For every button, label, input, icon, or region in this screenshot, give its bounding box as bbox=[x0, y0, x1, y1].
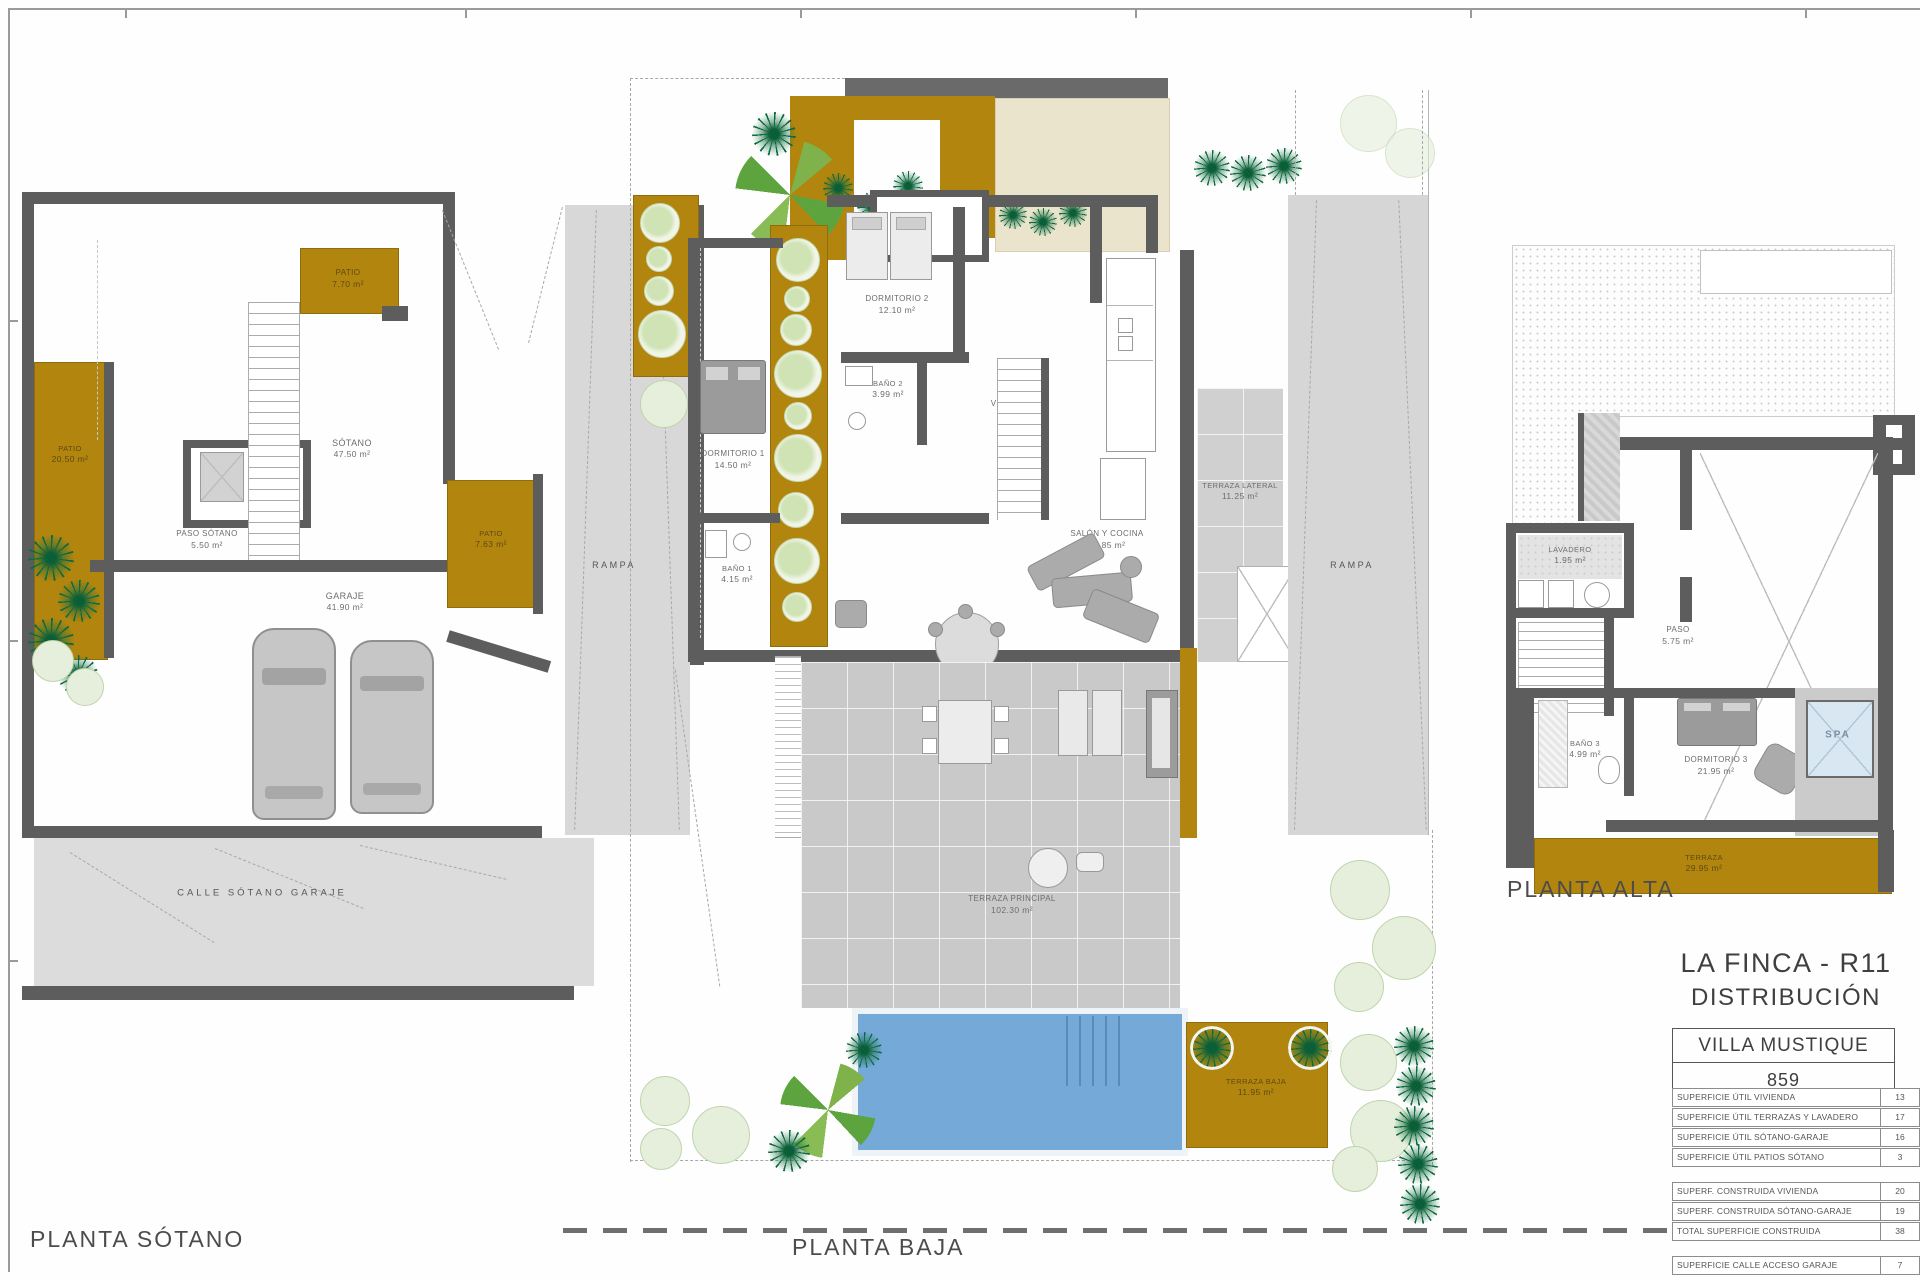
chair-icon bbox=[994, 738, 1009, 754]
lounger-icon bbox=[1092, 690, 1122, 756]
room-name: PATIO bbox=[336, 268, 361, 277]
dashed-line bbox=[700, 248, 701, 638]
area-row-value: 20 bbox=[1880, 1183, 1919, 1200]
tree-icon bbox=[1394, 1026, 1434, 1066]
wall bbox=[22, 192, 455, 204]
project-subtitle: DISTRIBUCIÓN bbox=[1672, 984, 1900, 1012]
wall bbox=[104, 362, 114, 658]
stairs bbox=[248, 302, 300, 564]
room-area: 12.10 m² bbox=[865, 305, 928, 316]
area-table-row: SUPERFICIE ÚTIL SÓTANO-GARAJE 16 bbox=[1672, 1128, 1920, 1147]
planter-pot-icon bbox=[782, 592, 812, 622]
room-label-paso: PASO 5.75 m² bbox=[1662, 625, 1694, 647]
area-row-label: SUPERFICIE ÚTIL PATIOS SÓTANO bbox=[1673, 1149, 1880, 1166]
frame-tick bbox=[10, 640, 18, 642]
area-table-row: SUPERF. CONSTRUIDA VIVIENDA 20 bbox=[1672, 1182, 1920, 1201]
frame-top-line bbox=[10, 8, 1920, 10]
room-label-lavadero: LAVADERO 1.95 m² bbox=[1549, 545, 1592, 567]
area-table-row: SUPERFICIE ÚTIL VIVIENDA 13 bbox=[1672, 1088, 1920, 1107]
room-label-sotano: SÓTANO 47.50 m² bbox=[332, 437, 372, 461]
frame-tick bbox=[800, 10, 802, 18]
tree-icon bbox=[1398, 1144, 1438, 1184]
wall bbox=[688, 513, 780, 523]
outdoor-table bbox=[938, 700, 992, 764]
plan-title-alta: PLANTA ALTA bbox=[1507, 876, 1675, 903]
bench-icon bbox=[1076, 852, 1104, 872]
tree-icon bbox=[768, 1130, 810, 1172]
room-area: 4.99 m² bbox=[1569, 749, 1601, 760]
sink-icon bbox=[1118, 336, 1133, 351]
room-label-dormitorio2: DORMITORIO 2 12.10 m² bbox=[865, 294, 928, 316]
area-table-row: SUPERFICIE ÚTIL TERRAZAS Y LAVADERO 17 bbox=[1672, 1108, 1920, 1127]
bush-icon bbox=[32, 640, 74, 682]
frame-tick bbox=[1805, 10, 1807, 18]
room-label-dormitorio3: DORMITORIO 3 21.95 m² bbox=[1684, 755, 1747, 777]
room-area: 5.75 m² bbox=[1662, 636, 1694, 647]
stair-rail bbox=[1041, 358, 1049, 520]
wall bbox=[1878, 830, 1894, 892]
wall-diagonal-garage bbox=[446, 630, 551, 672]
room-area: 11.95 m² bbox=[1226, 1087, 1286, 1098]
wall bbox=[953, 207, 965, 355]
tree-icon bbox=[1029, 208, 1057, 236]
street-label: CALLE SÓTANO GARAJE bbox=[177, 888, 347, 901]
wall bbox=[1680, 577, 1692, 622]
side-table-icon bbox=[1120, 556, 1142, 578]
dashed-line bbox=[1422, 90, 1423, 195]
room-name: BAÑO 2 bbox=[873, 379, 903, 388]
room-name: DORMITORIO 1 bbox=[701, 449, 764, 458]
project-title: LA FINCA - R11 bbox=[1672, 948, 1900, 979]
room-area: 29.95 m² bbox=[1685, 863, 1723, 874]
chair-icon bbox=[928, 622, 943, 637]
wall bbox=[1506, 688, 1534, 868]
tree-icon bbox=[1194, 150, 1230, 186]
bath-fixture bbox=[848, 412, 866, 430]
planter-pot-icon bbox=[774, 538, 820, 584]
area-row-label: SUPERF. CONSTRUIDA SÓTANO-GARAJE bbox=[1673, 1203, 1880, 1220]
kitchen-island bbox=[1100, 458, 1146, 520]
planter-pot-icon bbox=[784, 286, 810, 312]
bush-icon bbox=[640, 380, 688, 428]
chair-icon bbox=[990, 622, 1005, 637]
planter-pot-icon bbox=[644, 276, 674, 306]
room-label-terraza-principal: TERRAZA PRINCIPAL 102.30 m² bbox=[968, 894, 1056, 916]
room-label-terraza-lateral: TERRAZA LATERAL 11.25 m² bbox=[1202, 481, 1277, 503]
plan-title-sotano: PLANTA SÓTANO bbox=[30, 1226, 244, 1253]
room-name: PATIO bbox=[58, 444, 81, 453]
bush-icon bbox=[1340, 1034, 1397, 1091]
bush-icon bbox=[66, 668, 104, 706]
room-name: TERRAZA PRINCIPAL bbox=[968, 894, 1056, 903]
room-area: 1.95 m² bbox=[1549, 555, 1592, 566]
kitchen-counter bbox=[1106, 258, 1156, 452]
counter-line bbox=[1107, 305, 1153, 306]
garden-boundary bbox=[630, 1160, 1430, 1161]
basin-icon bbox=[1584, 582, 1610, 608]
room-label-garaje: GARAJE 41.90 m² bbox=[326, 590, 364, 614]
planter-pot-icon bbox=[646, 246, 672, 272]
garden-boundary bbox=[1428, 90, 1429, 835]
area-row-value: 3 bbox=[1880, 1149, 1919, 1166]
room-name: SPA bbox=[1825, 729, 1851, 740]
wall bbox=[917, 363, 927, 445]
frame-tick bbox=[465, 10, 467, 18]
room-area: 47.50 m² bbox=[332, 449, 372, 460]
room-area: 5.50 m² bbox=[176, 540, 237, 551]
room-area: 3.99 m² bbox=[872, 389, 904, 400]
room-name: PASO SÓTANO bbox=[176, 529, 237, 538]
pool bbox=[858, 1014, 1182, 1150]
room-label-bano2: BAÑO 2 3.99 m² bbox=[872, 379, 904, 401]
room-name: TERRAZA LATERAL bbox=[1202, 481, 1277, 490]
dashed-line bbox=[1295, 90, 1296, 195]
tree-icon bbox=[28, 535, 74, 581]
upper-terrace-band bbox=[790, 96, 995, 120]
wall bbox=[1090, 207, 1102, 303]
room-name: BAÑO 1 bbox=[722, 564, 752, 573]
counter-line bbox=[1107, 360, 1153, 361]
room-name: TERRAZA bbox=[1685, 853, 1723, 862]
tree-icon bbox=[1190, 1026, 1234, 1070]
bath-fixture bbox=[733, 533, 751, 551]
roof-area bbox=[1512, 415, 1583, 523]
planter-pot-icon bbox=[778, 492, 814, 528]
area-row-label: SUPERFICIE ÚTIL TERRAZAS Y LAVADERO bbox=[1673, 1109, 1880, 1126]
wall bbox=[22, 826, 542, 838]
wall bbox=[1506, 523, 1632, 533]
bush-icon bbox=[1330, 860, 1390, 920]
room-area: 11.25 m² bbox=[1202, 491, 1277, 502]
area-table-row: SUPERFICIE ÚTIL PATIOS SÓTANO 3 bbox=[1672, 1148, 1920, 1167]
room-name: DORMITORIO 3 bbox=[1684, 755, 1747, 764]
wall bbox=[22, 192, 34, 838]
room-label-dormitorio1: DORMITORIO 1 14.50 m² bbox=[701, 449, 764, 471]
area-row-label: TOTAL SUPERFICIE CONSTRUIDA bbox=[1673, 1223, 1880, 1240]
area-row-value: 7 bbox=[1880, 1257, 1919, 1274]
dashed-line bbox=[528, 207, 563, 343]
wall bbox=[1680, 442, 1692, 530]
stairs bbox=[997, 358, 1043, 520]
frame-tick bbox=[10, 320, 18, 322]
car-top-view bbox=[252, 628, 336, 820]
tree-icon bbox=[1288, 1026, 1332, 1070]
tree-icon bbox=[1266, 148, 1302, 184]
wall bbox=[1620, 437, 1880, 450]
wall bbox=[1606, 820, 1880, 832]
armchair-icon bbox=[835, 600, 867, 628]
wall bbox=[688, 238, 700, 662]
bush-icon bbox=[1372, 916, 1436, 980]
tree-icon bbox=[1396, 1066, 1436, 1106]
area-row-label: SUPERF. CONSTRUIDA VIVIENDA bbox=[1673, 1183, 1880, 1200]
room-area: 7.70 m² bbox=[332, 279, 364, 290]
room-area: 7.63 m² bbox=[475, 539, 507, 550]
garden-boundary bbox=[630, 78, 845, 79]
wall bbox=[533, 474, 543, 614]
appliance-icon bbox=[1548, 580, 1574, 608]
shower-icon bbox=[1538, 700, 1568, 788]
plan-title-baja: PLANTA BAJA bbox=[792, 1234, 964, 1261]
lounger-icon bbox=[1058, 690, 1088, 756]
wall bbox=[1578, 413, 1584, 521]
wall bbox=[1180, 250, 1194, 662]
planter-pot-icon bbox=[774, 350, 822, 398]
room-name: LAVADERO bbox=[1549, 545, 1592, 554]
sink-icon bbox=[1118, 318, 1133, 333]
area-table-row: SUPERFICIE CALLE ACCESO GARAJE 7 bbox=[1672, 1256, 1920, 1275]
wall bbox=[22, 986, 574, 1000]
room-area: 102.30 m² bbox=[968, 905, 1056, 916]
chair-icon bbox=[994, 706, 1009, 722]
area-row-value: 13 bbox=[1880, 1089, 1919, 1106]
appliance-icon bbox=[1518, 580, 1544, 608]
wall bbox=[841, 513, 989, 524]
planter-pot-icon bbox=[780, 314, 812, 346]
room-label-bano1: BAÑO 1 4.15 m² bbox=[721, 564, 753, 586]
room-label-spa: SPA bbox=[1825, 728, 1851, 742]
bush-icon bbox=[640, 1076, 690, 1126]
bed-icon bbox=[700, 360, 766, 434]
tree-icon bbox=[1230, 155, 1266, 191]
roof-edge-band bbox=[845, 78, 1168, 98]
deck-sliver bbox=[1180, 648, 1197, 838]
frame-tick bbox=[1135, 10, 1137, 18]
bath-fixture bbox=[705, 530, 727, 558]
ramp-surface bbox=[1288, 195, 1428, 835]
room-area: 41.90 m² bbox=[326, 602, 364, 613]
bath-fixture bbox=[845, 366, 873, 386]
room-area: 20.50 m² bbox=[52, 454, 89, 465]
room-label-rampa-baja: RAMPA bbox=[1330, 560, 1374, 570]
bush-icon bbox=[640, 1128, 682, 1170]
garden-boundary bbox=[630, 78, 631, 1162]
tree-icon bbox=[846, 1032, 882, 1068]
room-name: DORMITORIO 2 bbox=[865, 294, 928, 303]
chair-icon bbox=[922, 738, 937, 754]
tree-icon bbox=[752, 112, 796, 156]
frame-tick bbox=[125, 10, 127, 18]
wall bbox=[1634, 688, 1809, 698]
wall bbox=[1624, 523, 1634, 613]
wall bbox=[688, 238, 783, 248]
room-name: PASO bbox=[1666, 625, 1689, 634]
room-label-terraza-baja: TERRAZA BAJA 11.95 m² bbox=[1226, 1077, 1286, 1099]
planter-pot-icon bbox=[640, 203, 680, 243]
chair-icon bbox=[922, 706, 937, 722]
chair-icon bbox=[958, 604, 973, 619]
bush-icon bbox=[692, 1106, 750, 1164]
bed-icon bbox=[890, 212, 932, 280]
wall bbox=[382, 306, 408, 321]
area-row-label: SUPERFICIE CALLE ACCESO GARAJE bbox=[1673, 1257, 1880, 1274]
room-name: TERRAZA BAJA bbox=[1226, 1077, 1286, 1086]
garden-steps bbox=[775, 656, 801, 838]
garden-boundary bbox=[1432, 830, 1433, 1165]
street-area bbox=[34, 838, 594, 986]
planter-pot-icon bbox=[638, 310, 686, 358]
frame-tick bbox=[1470, 10, 1472, 18]
bush-icon bbox=[1332, 1146, 1378, 1192]
room-name: BAÑO 3 bbox=[1570, 739, 1600, 748]
area-row-value: 38 bbox=[1880, 1223, 1919, 1240]
pool-steps bbox=[1066, 1016, 1122, 1086]
street-name: CALLE SÓTANO GARAJE bbox=[177, 888, 347, 899]
wall bbox=[1146, 195, 1158, 253]
wall bbox=[1624, 688, 1634, 796]
room-label-patio-right: PATIO 7.63 m² bbox=[475, 529, 507, 551]
plan-sheet: PATIO 7.70 m² PATIO 20.50 m² PATIO 7.63 … bbox=[0, 0, 1920, 1280]
bush-icon bbox=[1334, 962, 1384, 1012]
room-name: GARAJE bbox=[326, 591, 364, 601]
tree-icon bbox=[1394, 1106, 1434, 1146]
room-name: PATIO bbox=[479, 529, 502, 538]
room-area: 14.50 m² bbox=[701, 460, 764, 471]
wall bbox=[1506, 688, 1634, 698]
wall bbox=[841, 352, 969, 363]
elevator-cab bbox=[200, 452, 244, 502]
area-row-value: 16 bbox=[1880, 1129, 1919, 1146]
chimney-strip bbox=[1584, 413, 1620, 521]
roof-hatch-outline bbox=[1700, 250, 1892, 294]
room-label-paso-sotano: PASO SÓTANO 5.50 m² bbox=[176, 529, 237, 551]
area-row-value: 17 bbox=[1880, 1109, 1919, 1126]
area-row-label: SUPERFICIE ÚTIL VIVIENDA bbox=[1673, 1089, 1880, 1106]
room-area: 21.95 m² bbox=[1684, 766, 1747, 777]
bush-icon bbox=[1385, 128, 1435, 178]
firepit-icon bbox=[1028, 848, 1068, 888]
room-label-bano3: BAÑO 3 4.99 m² bbox=[1569, 739, 1601, 761]
toilet-icon bbox=[1598, 756, 1620, 784]
room-label-patio-left: PATIO 20.50 m² bbox=[52, 444, 89, 466]
roof-cream-panel bbox=[995, 98, 1170, 252]
wall bbox=[1604, 608, 1614, 716]
room-area: 4.15 m² bbox=[721, 574, 753, 585]
dashed-line bbox=[97, 240, 98, 440]
wall bbox=[1878, 437, 1893, 837]
frame-tick bbox=[10, 960, 18, 962]
car-top-view bbox=[350, 640, 434, 814]
bed-icon bbox=[846, 212, 888, 280]
tree-icon bbox=[1400, 1184, 1440, 1224]
planter-pot-icon bbox=[774, 434, 822, 482]
bbq-top bbox=[1152, 698, 1170, 768]
wall bbox=[1506, 608, 1634, 618]
room-label-patio-top: PATIO 7.70 m² bbox=[332, 268, 364, 290]
villa-name: VILLA MUSTIQUE bbox=[1673, 1029, 1894, 1063]
wall bbox=[90, 560, 450, 572]
bed-icon bbox=[1677, 698, 1757, 746]
tree-icon bbox=[58, 580, 100, 622]
area-table-row: SUPERF. CONSTRUIDA SÓTANO-GARAJE 19 bbox=[1672, 1202, 1920, 1221]
planter-pot-icon bbox=[784, 402, 812, 430]
area-table-row: TOTAL SUPERFICIE CONSTRUIDA 38 bbox=[1672, 1222, 1920, 1241]
room-label-terraza-alta: TERRAZA 29.95 m² bbox=[1685, 853, 1723, 875]
area-row-label: SUPERFICIE ÚTIL SÓTANO-GARAJE bbox=[1673, 1129, 1880, 1146]
room-name: SÓTANO bbox=[332, 438, 372, 448]
area-row-value: 19 bbox=[1880, 1203, 1919, 1220]
